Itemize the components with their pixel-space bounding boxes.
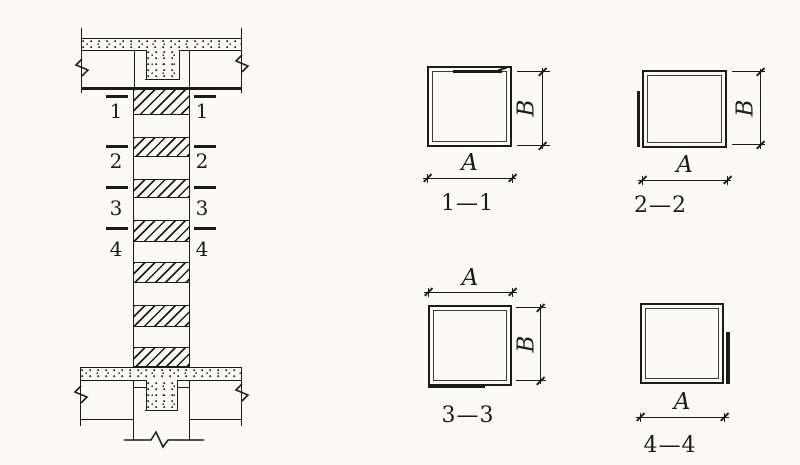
figure-canvas: 1 1 2 2 3 3 4 4 (0, 0, 800, 465)
bottom-slab-bottom-left (80, 380, 146, 381)
section-cut-number-3-left: 3 (106, 198, 126, 218)
section-cut-number-3-right: 3 (192, 198, 212, 218)
bottom-slab-bottom-right (177, 380, 242, 381)
section-cut-tick-2-left (106, 145, 128, 148)
bottom-beam-step-left (133, 387, 146, 388)
dim-a-letter: A (640, 391, 724, 414)
section-cut-number-4-left: 4 (106, 239, 126, 259)
section-2-2-outline (642, 70, 727, 148)
dim-a-letter: A (642, 154, 727, 177)
bottom-beam-concrete (147, 382, 176, 408)
bottom-wall-edge-left (80, 367, 81, 426)
section-cut-tick-1-left (106, 95, 128, 98)
section-cut-tick-1-right (194, 95, 216, 98)
hatch-band (133, 220, 189, 242)
top-beam-side-right (179, 50, 180, 80)
bottom-ceiling-line-right (189, 419, 242, 420)
dim-b-letter: B (515, 329, 539, 360)
section-label-1-1: 1—1 (425, 193, 510, 215)
section-cut-number-2-right: 2 (192, 151, 212, 171)
tie-lap-bar-right (726, 332, 730, 384)
dim-a-line (638, 180, 731, 181)
top-slab-bottom-left (81, 50, 146, 51)
dim-b-line (760, 69, 761, 149)
bottom-ceiling-line-left (80, 419, 133, 420)
dim-a-letter: A (428, 267, 512, 290)
tie-lap-bar-top (453, 70, 502, 74)
hatch-band (133, 305, 189, 327)
bottom-column-edge-right (189, 380, 190, 440)
bottom-column-edge-left (133, 380, 134, 440)
section-1-1-outline (427, 66, 512, 147)
dim-ext (517, 145, 550, 146)
dim-ext (517, 71, 550, 72)
section-cut-tick-4-right (194, 227, 216, 230)
bottom-beam-side-right (177, 380, 178, 410)
hatch-band (133, 347, 189, 367)
dim-b-line (542, 68, 543, 149)
section-cut-number-1-right: 1 (192, 101, 212, 121)
top-column-edge-left (134, 50, 135, 88)
top-beam-concrete (147, 51, 178, 78)
section-cut-tick-4-left (106, 227, 128, 230)
hatch-band (133, 137, 189, 157)
section-4-4-outline (640, 303, 724, 384)
tie-lap-bar-left (637, 91, 641, 147)
top-beam-bottom (145, 79, 180, 80)
top-slab-concrete (82, 40, 241, 51)
dim-a-letter: A (427, 152, 512, 175)
top-column-edge-right (189, 50, 190, 88)
section-cut-tick-3-right (194, 186, 216, 189)
section-label-2-2: 2—2 (618, 195, 703, 217)
section-label-3-3: 3—3 (426, 405, 510, 427)
section-1-1-inner-line (432, 71, 507, 142)
dim-a-line (423, 178, 516, 179)
section-label-4-4: 4—4 (628, 435, 712, 457)
bottom-beam-bottom (145, 410, 178, 411)
section-cut-tick-3-left (106, 186, 128, 189)
dim-b-letter: B (734, 93, 758, 124)
bottom-wall-edge-right (241, 367, 242, 426)
section-cut-number-1-left: 1 (106, 101, 126, 121)
tie-lap-bar-bottom (428, 385, 485, 389)
dim-b-line (540, 304, 541, 384)
section-cut-number-4-right: 4 (192, 239, 212, 259)
bottom-slab-concrete (81, 369, 241, 380)
dim-a-line (636, 417, 729, 418)
section-cut-number-2-left: 2 (106, 151, 126, 171)
hatch-band (133, 262, 189, 283)
section-3-3-outline (428, 305, 512, 386)
section-4-4-inner-line (645, 308, 719, 379)
section-cut-tick-2-right (194, 145, 216, 148)
dim-b-letter: B (515, 93, 539, 124)
dim-a-line (424, 292, 517, 293)
hatch-band (133, 89, 189, 115)
hatch-band (133, 179, 189, 198)
column-break-line (124, 432, 204, 447)
bottom-beam-step-right (177, 387, 189, 388)
section-3-3-inner-line (433, 310, 507, 381)
section-2-2-inner-line (647, 75, 722, 143)
